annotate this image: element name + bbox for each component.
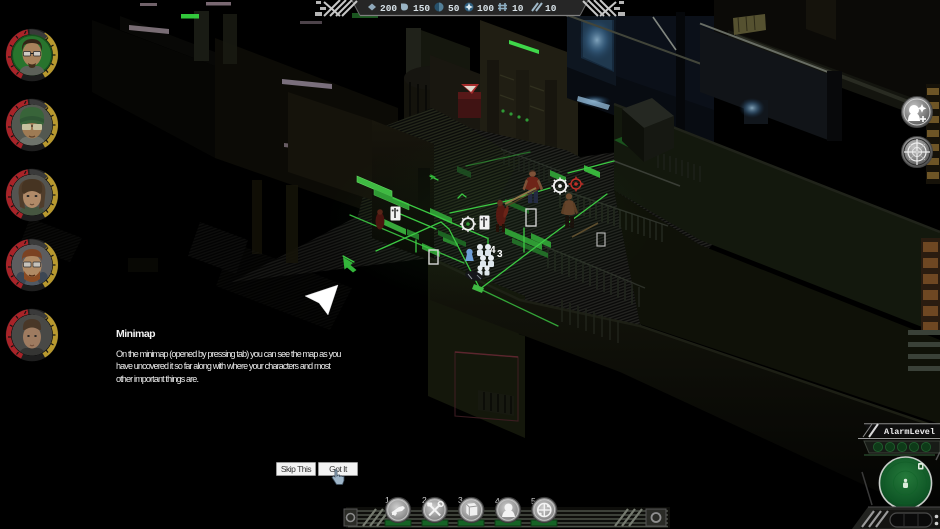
svg-text:150: 150 bbox=[413, 3, 430, 14]
svg-text:AlarmLevel: AlarmLevel bbox=[884, 427, 935, 437]
svg-text:100: 100 bbox=[477, 3, 494, 14]
svg-text:10: 10 bbox=[545, 3, 557, 14]
svg-text:10: 10 bbox=[512, 3, 524, 14]
svg-text:50: 50 bbox=[448, 3, 460, 14]
svg-text:200: 200 bbox=[380, 3, 397, 14]
